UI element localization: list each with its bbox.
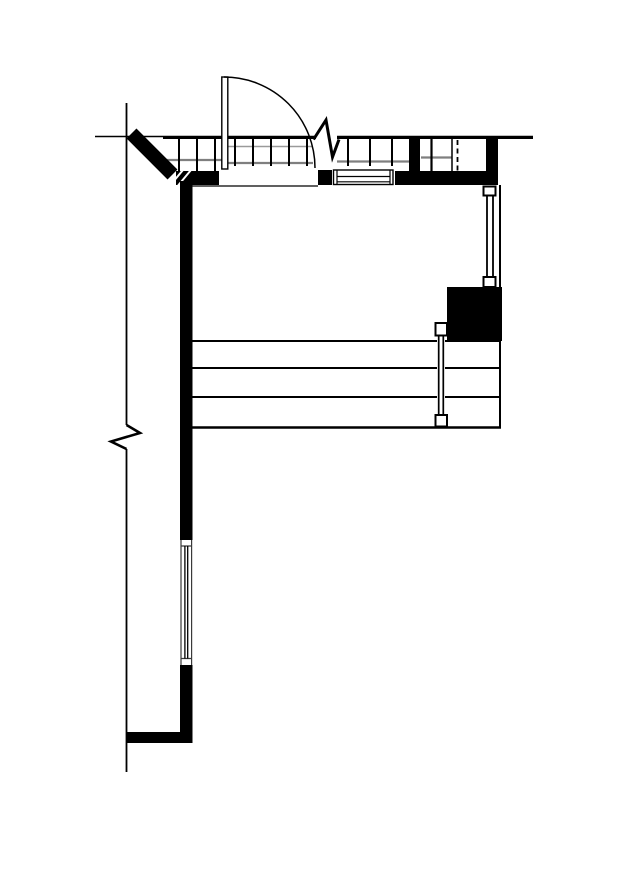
right-glazing-upper [484,187,496,288]
entry-door-swing-arc [224,77,315,168]
floor-plan-canvas [0,0,622,893]
top-wall-break-mark [314,114,340,160]
step-lines [193,341,501,397]
left-window-frame [181,540,192,665]
left-reference-break-mark [111,425,140,449]
glazing-lower-bottom-cap [436,415,448,427]
hatch-mullion-ticks [179,139,392,171]
floor-step-lines [193,341,502,428]
hatch-cell-box [432,137,453,173]
left-wall [127,181,193,743]
right-glazing-lower [436,323,448,427]
entry-door-leaf [222,77,228,169]
left-window-glazing-lines [185,546,188,659]
reference-lines [95,103,533,772]
top-window-sill [334,170,394,185]
solid-column [447,287,502,341]
plan-sheet [0,0,622,893]
left-wall-window [181,540,192,665]
glazing-upper-bottom-cap [484,277,496,287]
glazing-upper-top-cap [484,187,496,196]
glazing-lower-top-cap [436,323,448,336]
right-enclosure [436,185,503,428]
diagonal-wall-body [132,134,173,175]
